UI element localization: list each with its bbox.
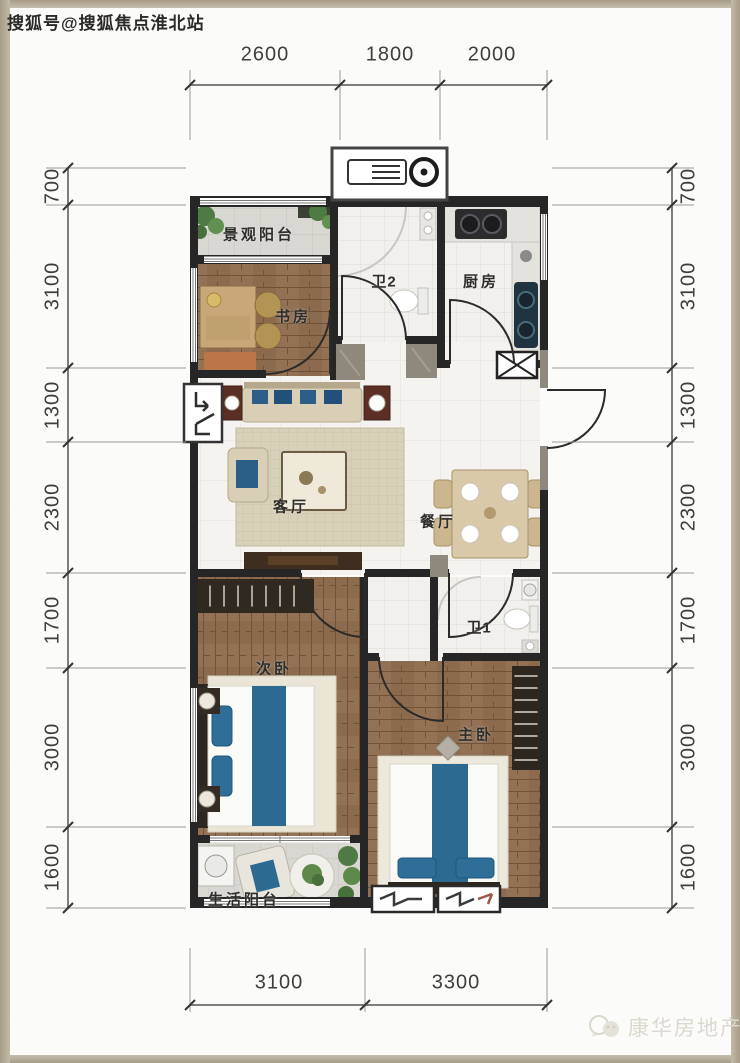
floorplan-image: 搜狐号@搜狐焦点淮北站 康华房地产 景观阳台 书房 卫2 厨房 客厅 餐厅 次卧… <box>0 0 740 1063</box>
living-furniture-icon <box>222 382 404 570</box>
room-label-view-balcony: 景观阳台 <box>223 224 295 245</box>
room-label-life-balcony: 生活阳台 <box>208 889 280 910</box>
agency-watermark: 康华房地产 <box>588 1012 740 1042</box>
dim-left-2300: 2300 <box>42 483 65 532</box>
room-label-master: 主卧 <box>458 724 494 745</box>
dim-bottom-3300: 3300 <box>432 972 481 995</box>
dim-left-3000: 3000 <box>42 723 65 772</box>
room-label-kitchen: 厨房 <box>463 271 499 292</box>
room-label-dining: 餐厅 <box>420 511 456 532</box>
dim-right-2300: 2300 <box>678 483 701 532</box>
dim-left-3100: 3100 <box>42 262 65 311</box>
dim-left-1700: 1700 <box>42 596 65 645</box>
dim-right-1300: 1300 <box>678 381 701 430</box>
floorplan-drawing <box>0 0 740 1063</box>
frame-top <box>0 0 740 8</box>
chat-bubbles-icon <box>588 1014 622 1040</box>
ac-platform-icon <box>184 384 222 442</box>
equipment-platform-icon <box>332 148 447 200</box>
dim-top-1800: 1800 <box>366 44 415 67</box>
frame-bottom <box>0 1055 740 1063</box>
dim-right-1600: 1600 <box>678 843 701 892</box>
dim-top-2600: 2600 <box>241 44 290 67</box>
sohu-watermark: 搜狐号@搜狐焦点淮北站 <box>7 9 205 34</box>
dim-right-3100: 3100 <box>678 262 701 311</box>
dim-left-1300: 1300 <box>42 381 65 430</box>
room-label-bath2: 卫2 <box>371 271 396 292</box>
dim-right-3000: 3000 <box>678 723 701 772</box>
flue-icon <box>497 352 537 378</box>
room-label-living: 客厅 <box>273 496 309 517</box>
dim-left-1600: 1600 <box>42 843 65 892</box>
frame-right <box>731 0 740 1063</box>
dim-right-700: 700 <box>678 168 701 204</box>
dim-right-1700: 1700 <box>678 596 701 645</box>
room-label-study: 书房 <box>275 306 311 327</box>
dim-bottom-3100: 3100 <box>255 972 304 995</box>
dim-left-700: 700 <box>42 168 65 204</box>
agency-watermark-text: 康华房地产 <box>628 1012 740 1042</box>
dim-top-2000: 2000 <box>468 44 517 67</box>
room-label-bedroom2: 次卧 <box>256 658 292 679</box>
frame-left <box>0 0 10 1063</box>
room-label-bath1: 卫1 <box>466 617 491 638</box>
